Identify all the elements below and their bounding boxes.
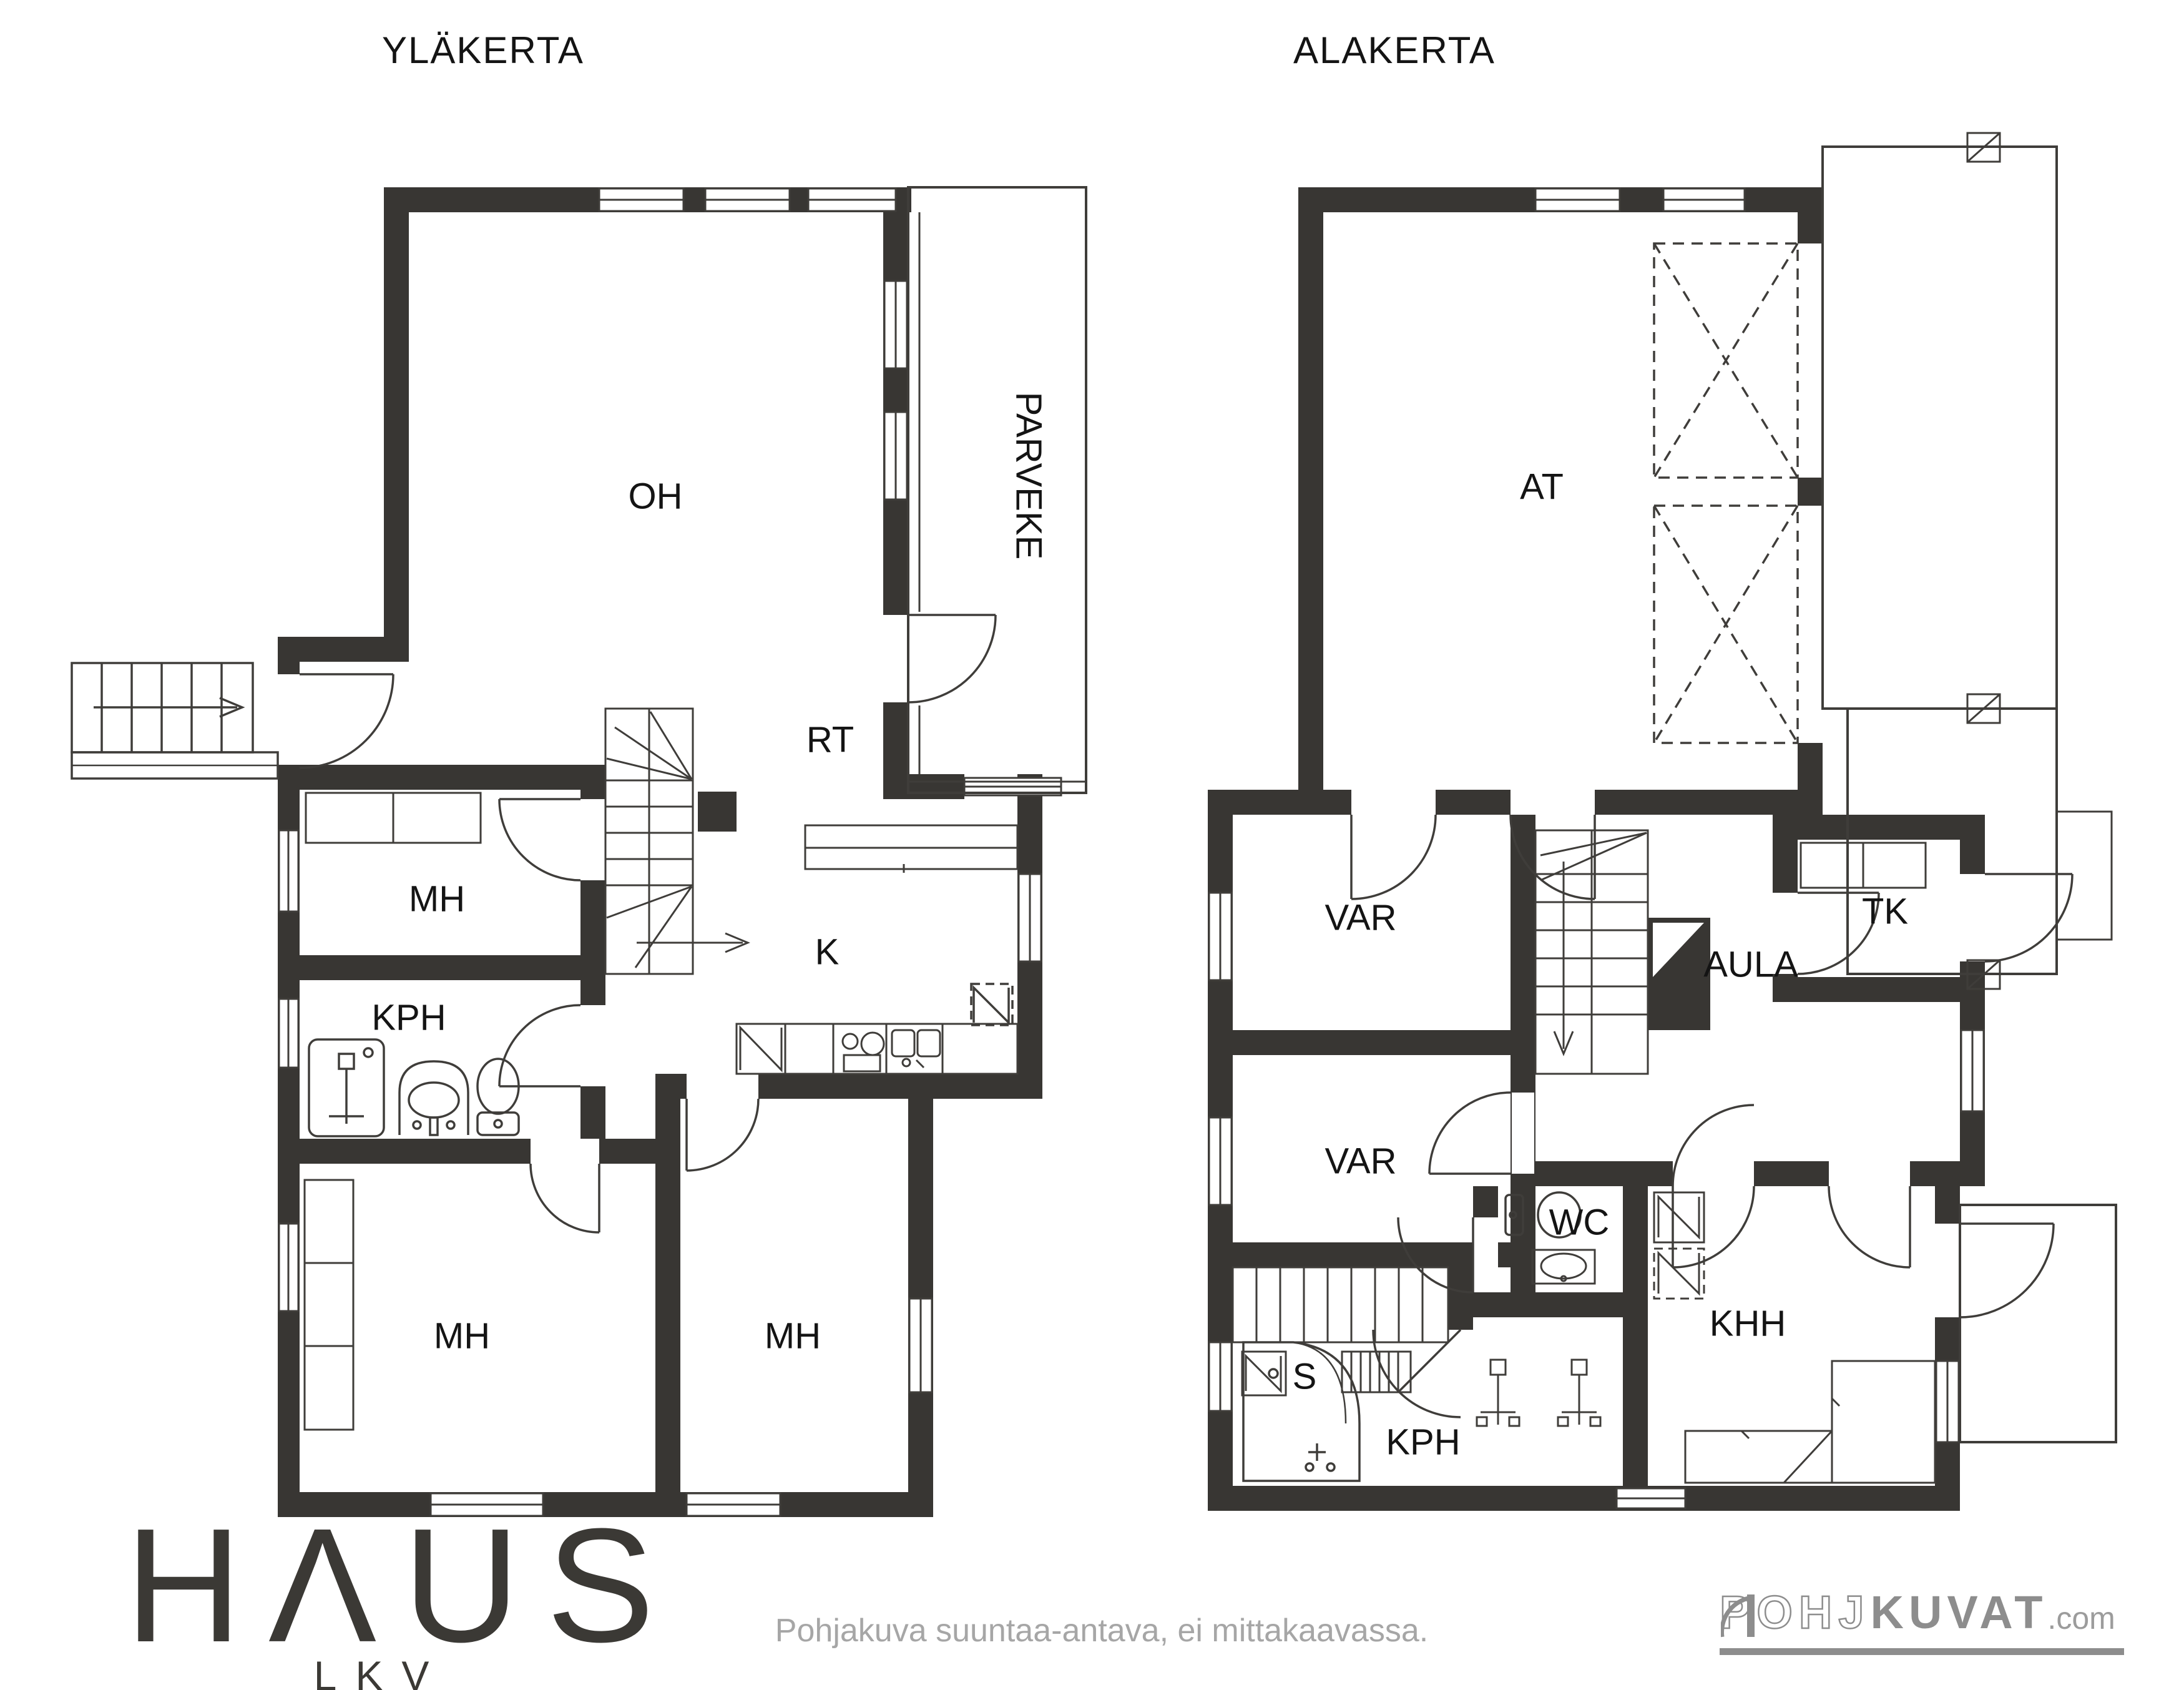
window-icon: [279, 830, 298, 911]
sink-icon: [1532, 1250, 1595, 1284]
room-label-k: K: [815, 931, 840, 973]
door-swing-icon: [499, 1005, 580, 1086]
alakerta-garage-bays: [1654, 243, 1798, 743]
window-icon: [909, 1299, 932, 1392]
door-swing-icon: [499, 799, 580, 880]
garage-bay-dashed-icon: [1654, 243, 1798, 478]
window-icon: [1209, 1342, 1232, 1411]
garage-bay-dashed-icon: [1654, 506, 1798, 743]
counter-icon: [1685, 1361, 1935, 1483]
door-swing-icon: [1960, 1224, 2054, 1317]
room-label-kph: KPH: [371, 997, 446, 1039]
disclaimer-text: Pohjakuva suuntaa-antava, ei mittakaavas…: [737, 1612, 1467, 1649]
sauna-heater-icon: [1342, 1352, 1411, 1392]
stairs-icon: [1233, 1267, 1448, 1342]
room-label-oh: OH: [629, 476, 683, 518]
closet-icon: [306, 793, 481, 843]
counter-icon: [805, 825, 1017, 873]
stove-icon: [843, 1033, 884, 1071]
door-swing-icon: [908, 615, 996, 702]
alakerta-plan: [1208, 133, 2116, 1511]
door-swing-icon: [1351, 815, 1436, 899]
window-icon: [1663, 189, 1745, 211]
room-label-at: AT: [1520, 466, 1564, 508]
alakerta-s-area: [1233, 1267, 1448, 1395]
room-label-var2: VAR: [1325, 1141, 1397, 1182]
haus-logo-sub: LKV: [268, 1652, 493, 1690]
shower-icon: [309, 1039, 384, 1136]
room-label-s: S: [1293, 1356, 1317, 1398]
dishwasher-icon: [740, 1028, 781, 1070]
stairs-icon: [605, 709, 748, 974]
door-swing-icon: [300, 674, 393, 768]
floorplan-page: YLÄKERTA ALAKERTA OH PARVEKE RT MH K KPH…: [0, 0, 2184, 1690]
door-swing-icon: [1721, 1586, 1757, 1638]
floor-title-ylakerta: YLÄKERTA: [382, 29, 584, 72]
haus-logo: HΛUS: [125, 1517, 681, 1655]
room-label-khh: KHH: [1710, 1303, 1786, 1345]
room-label-kph2: KPH: [1386, 1422, 1460, 1463]
room-label-aula: AULA: [1703, 944, 1798, 986]
window-icon: [884, 281, 907, 368]
alakerta-staircase: [1535, 830, 1648, 1074]
door-swing-icon: [1429, 1093, 1511, 1174]
stairs-icon: [1535, 830, 1648, 1074]
floor-title-alakerta: ALAKERTA: [1293, 29, 1496, 72]
pohjakuvat-logo: POHJ KUVAT .com: [1720, 1586, 2125, 1639]
door-swing-icon: [1985, 874, 2072, 961]
laundry-appliance-icon: [1654, 1249, 1704, 1299]
window-icon: [1617, 1488, 1685, 1508]
shower-mixer-icon: [1477, 1360, 1519, 1426]
stairs-icon: [72, 663, 278, 779]
door-swing-icon: [687, 1099, 758, 1171]
window-icon: [1209, 1118, 1232, 1205]
window-icon: [1936, 1361, 1959, 1442]
laundry-appliance-icon: [1242, 1352, 1286, 1395]
floorplan-drawing: [0, 0, 2184, 1690]
alakerta-walls: [1208, 187, 1985, 1511]
window-icon: [279, 999, 298, 1068]
window-icon: [705, 189, 790, 211]
room-label-rt: RT: [806, 719, 854, 761]
pohjakuvat-logo-baseline: [1720, 1648, 2124, 1655]
window-icon: [1535, 189, 1620, 211]
room-label-tk: TK: [1862, 891, 1908, 933]
sink-icon: [399, 1061, 468, 1135]
ylakerta-balcony: [908, 187, 1086, 793]
window-icon: [1961, 1030, 1984, 1111]
ylakerta-plan: [72, 187, 1086, 1517]
room-label-mh2: MH: [434, 1315, 490, 1357]
room-label-mh1: MH: [409, 878, 465, 920]
closet-icon: [305, 1180, 353, 1430]
ylakerta-staircase: [605, 709, 748, 974]
window-icon: [808, 189, 896, 211]
sink-icon: [892, 1030, 940, 1068]
ylakerta-entry-stairs: [72, 663, 278, 779]
door-swing-icon: [1673, 1186, 1754, 1267]
pohjakuvat-logo-suffix: .com: [2047, 1600, 2115, 1639]
laundry-appliance-icon: [1654, 1192, 1704, 1242]
room-label-wc: WC: [1549, 1202, 1610, 1244]
refrigerator-icon: [971, 984, 1012, 1025]
closet-icon: [1801, 843, 1926, 888]
room-label-mh3: MH: [765, 1315, 821, 1357]
room-label-parveke: PARVEKE: [1008, 392, 1050, 560]
window-icon: [1209, 893, 1232, 980]
window-icon: [279, 1224, 298, 1311]
window-icon: [1019, 874, 1041, 961]
door-swing-icon: [1829, 1186, 1910, 1267]
window-icon: [687, 1493, 780, 1516]
window-icon: [599, 189, 683, 211]
door-swing-icon: [531, 1164, 599, 1232]
fireplace-icon: [698, 792, 737, 832]
shower-mixer-icon: [1558, 1360, 1600, 1426]
pohjakuvat-logo-part2: KUVAT: [1871, 1586, 2048, 1639]
alakerta-carport-porches: [1823, 133, 2116, 1442]
room-label-var1: VAR: [1325, 897, 1397, 939]
window-icon: [884, 412, 907, 499]
toilet-icon: [477, 1059, 519, 1135]
